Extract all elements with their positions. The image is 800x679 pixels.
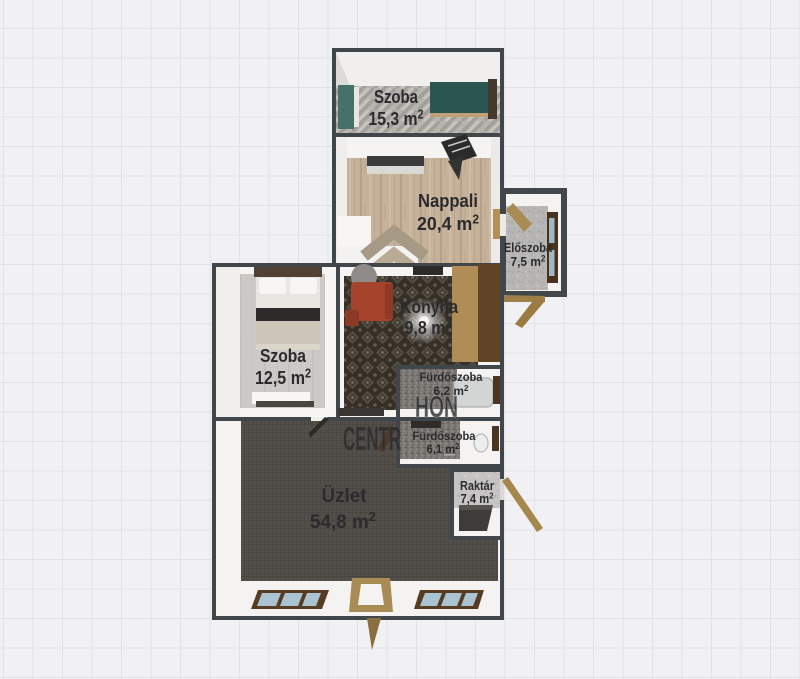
svg-text:Konyha: Konyha [400, 296, 459, 317]
svg-text:54,8 m2: 54,8 m2 [310, 509, 376, 533]
svg-text:HON: HON [415, 389, 458, 424]
svg-text:7,5 m2: 7,5 m2 [511, 254, 546, 270]
svg-text:9,8 m2: 9,8 m2 [405, 317, 452, 339]
svg-text:6,1 m2: 6,1 m2 [427, 442, 461, 456]
svg-text:Fürdőszoba: Fürdőszoba [420, 372, 484, 384]
svg-text:12,5 m2: 12,5 m2 [255, 367, 311, 389]
svg-text:CENTR: CENTR [343, 420, 401, 457]
svg-text:15,3 m2: 15,3 m2 [369, 108, 424, 130]
svg-text:Fürdőszoba: Fürdőszoba [413, 431, 477, 443]
svg-text:20,4 m2: 20,4 m2 [417, 213, 479, 235]
svg-text:Szoba: Szoba [260, 345, 307, 366]
svg-text:Nappali: Nappali [418, 190, 478, 211]
svg-text:Szoba: Szoba [374, 86, 419, 107]
svg-text:7,4 m2: 7,4 m2 [461, 491, 494, 507]
svg-text:Üzlet: Üzlet [322, 486, 368, 507]
